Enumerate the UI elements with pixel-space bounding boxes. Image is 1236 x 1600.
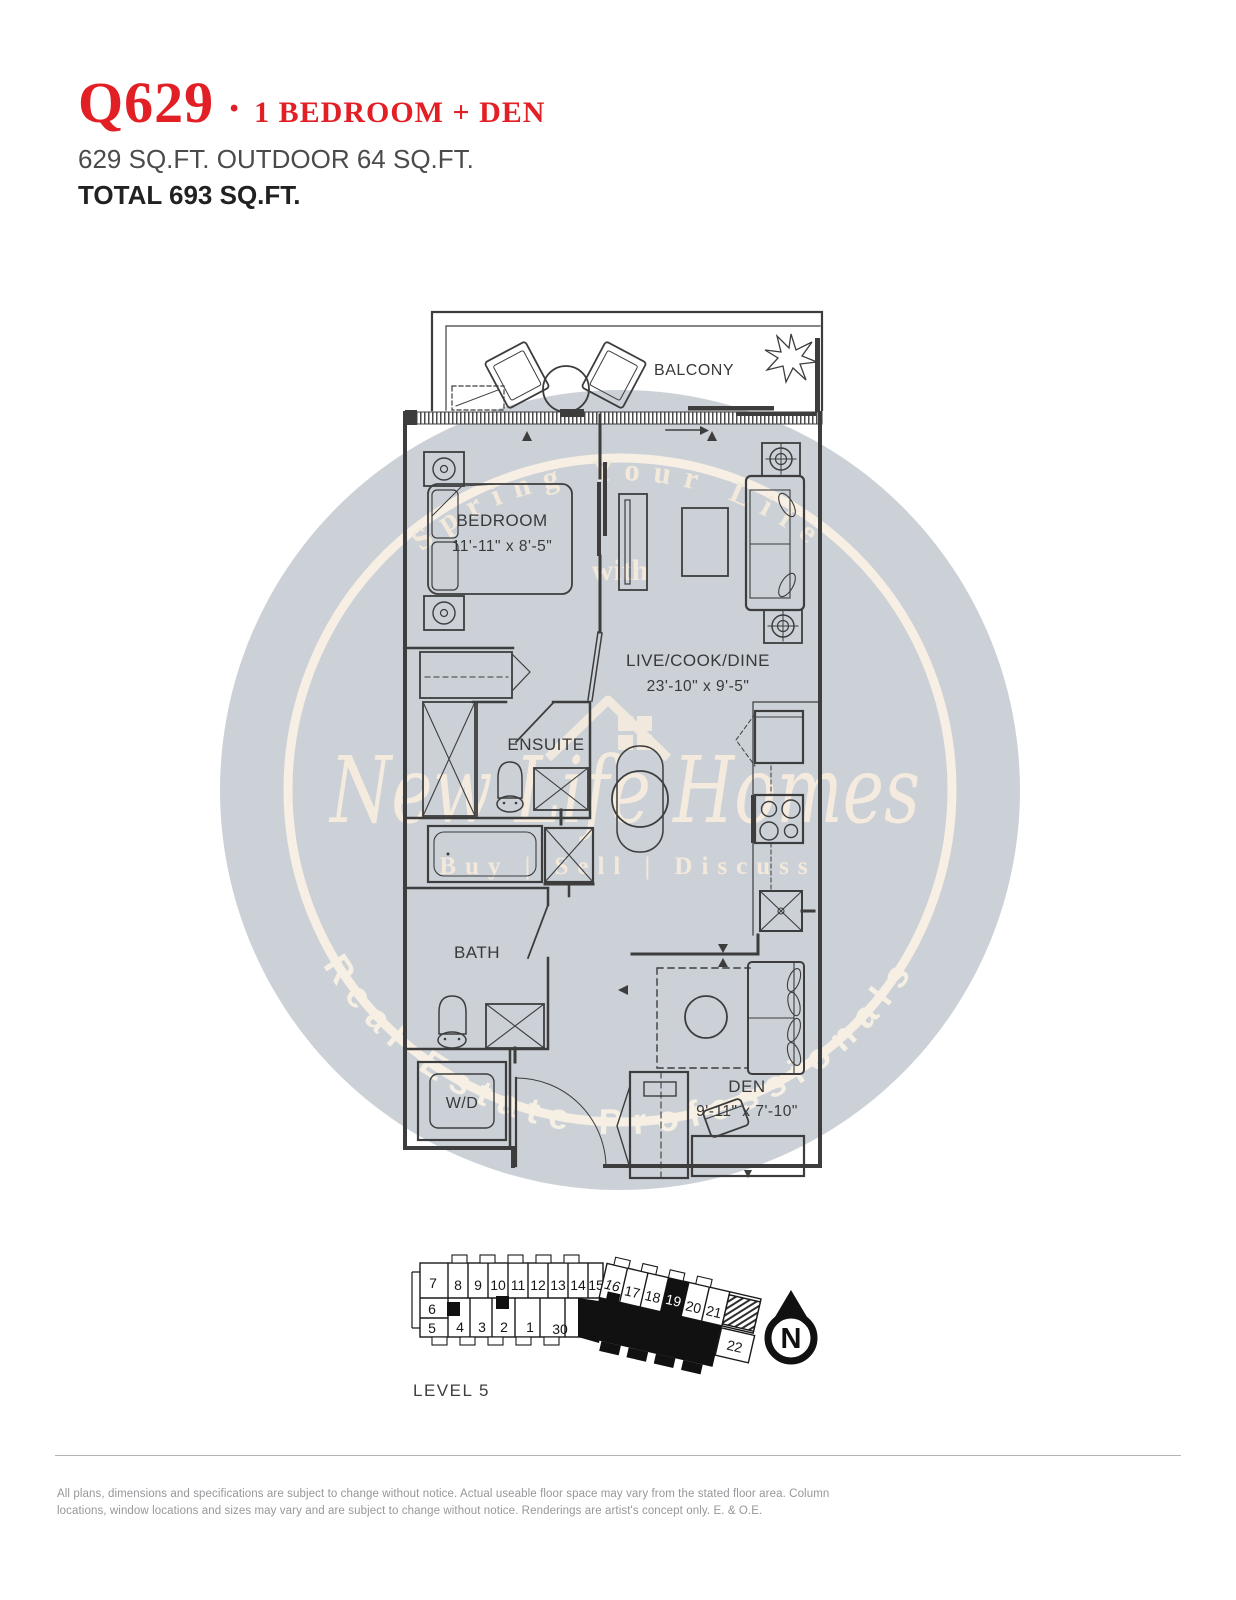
room-dims-living: 23'-10" x 9'-5" (647, 678, 750, 695)
room-label-balcony: BALCONY (654, 362, 734, 379)
keyplan-unit: 5 (428, 1320, 436, 1336)
room-label-den: DEN (728, 1077, 765, 1096)
keyplan-unit: 1 (526, 1319, 534, 1335)
keyplan-unit: 8 (454, 1277, 462, 1293)
keyplan-unit: 11 (511, 1277, 526, 1293)
keyplan-unit: 14 (570, 1277, 586, 1293)
keyplan-unit: 6 (428, 1301, 436, 1317)
privacy-screen (815, 338, 820, 412)
keyplan-unit: 30 (552, 1321, 568, 1337)
keyplan-unit: 4 (456, 1319, 464, 1335)
room-label-ensuite: ENSUITE (507, 735, 584, 754)
north-label: N (781, 1323, 802, 1355)
keyplan-unit: 3 (478, 1319, 486, 1335)
watermark-brand-text: New Life Homes (328, 737, 920, 844)
keyplan-unit: 10 (490, 1277, 506, 1293)
keyplan-unit: 2 (500, 1319, 508, 1335)
watermark: Spring Your Life with New Life Homes Buy… (220, 390, 1020, 1190)
keyplan-unit: 9 (474, 1277, 482, 1293)
key-plan: 7 8 9 10 11 12 13 14 15 6 5 4 3 2 1 30 (412, 1255, 765, 1400)
room-dims-bedroom: 11'-11" x 8'-5" (452, 538, 553, 555)
keyplan-unit: 7 (429, 1275, 437, 1291)
floorplan-canvas: Spring Your Life with New Life Homes Buy… (0, 0, 1236, 1600)
room-label-laundry: W/D (446, 1095, 479, 1112)
room-dims-den: 9'-11" x 7'-10" (696, 1103, 798, 1120)
keyplan-level-label: LEVEL 5 (413, 1381, 490, 1400)
disclaimer: All plans, dimensions and specifications… (57, 1486, 1182, 1519)
keyplan-angled-wing: 16 17 18 19 20 21 22 (587, 1256, 764, 1385)
keyplan-unit: 12 (530, 1277, 546, 1293)
room-label-bedroom: BEDROOM (456, 511, 547, 530)
disclaimer-line-1: All plans, dimensions and specifications… (57, 1486, 1182, 1503)
leaf-plant-icon (765, 334, 817, 382)
north-arrow-icon: N (768, 1290, 814, 1361)
room-label-living: LIVE/COOK/DINE (626, 651, 770, 670)
keyplan-unit: 13 (550, 1277, 566, 1293)
disclaimer-line-2: locations, window locations and sizes ma… (57, 1503, 1182, 1520)
room-label-bath: BATH (454, 943, 500, 962)
footer-divider (55, 1455, 1181, 1456)
